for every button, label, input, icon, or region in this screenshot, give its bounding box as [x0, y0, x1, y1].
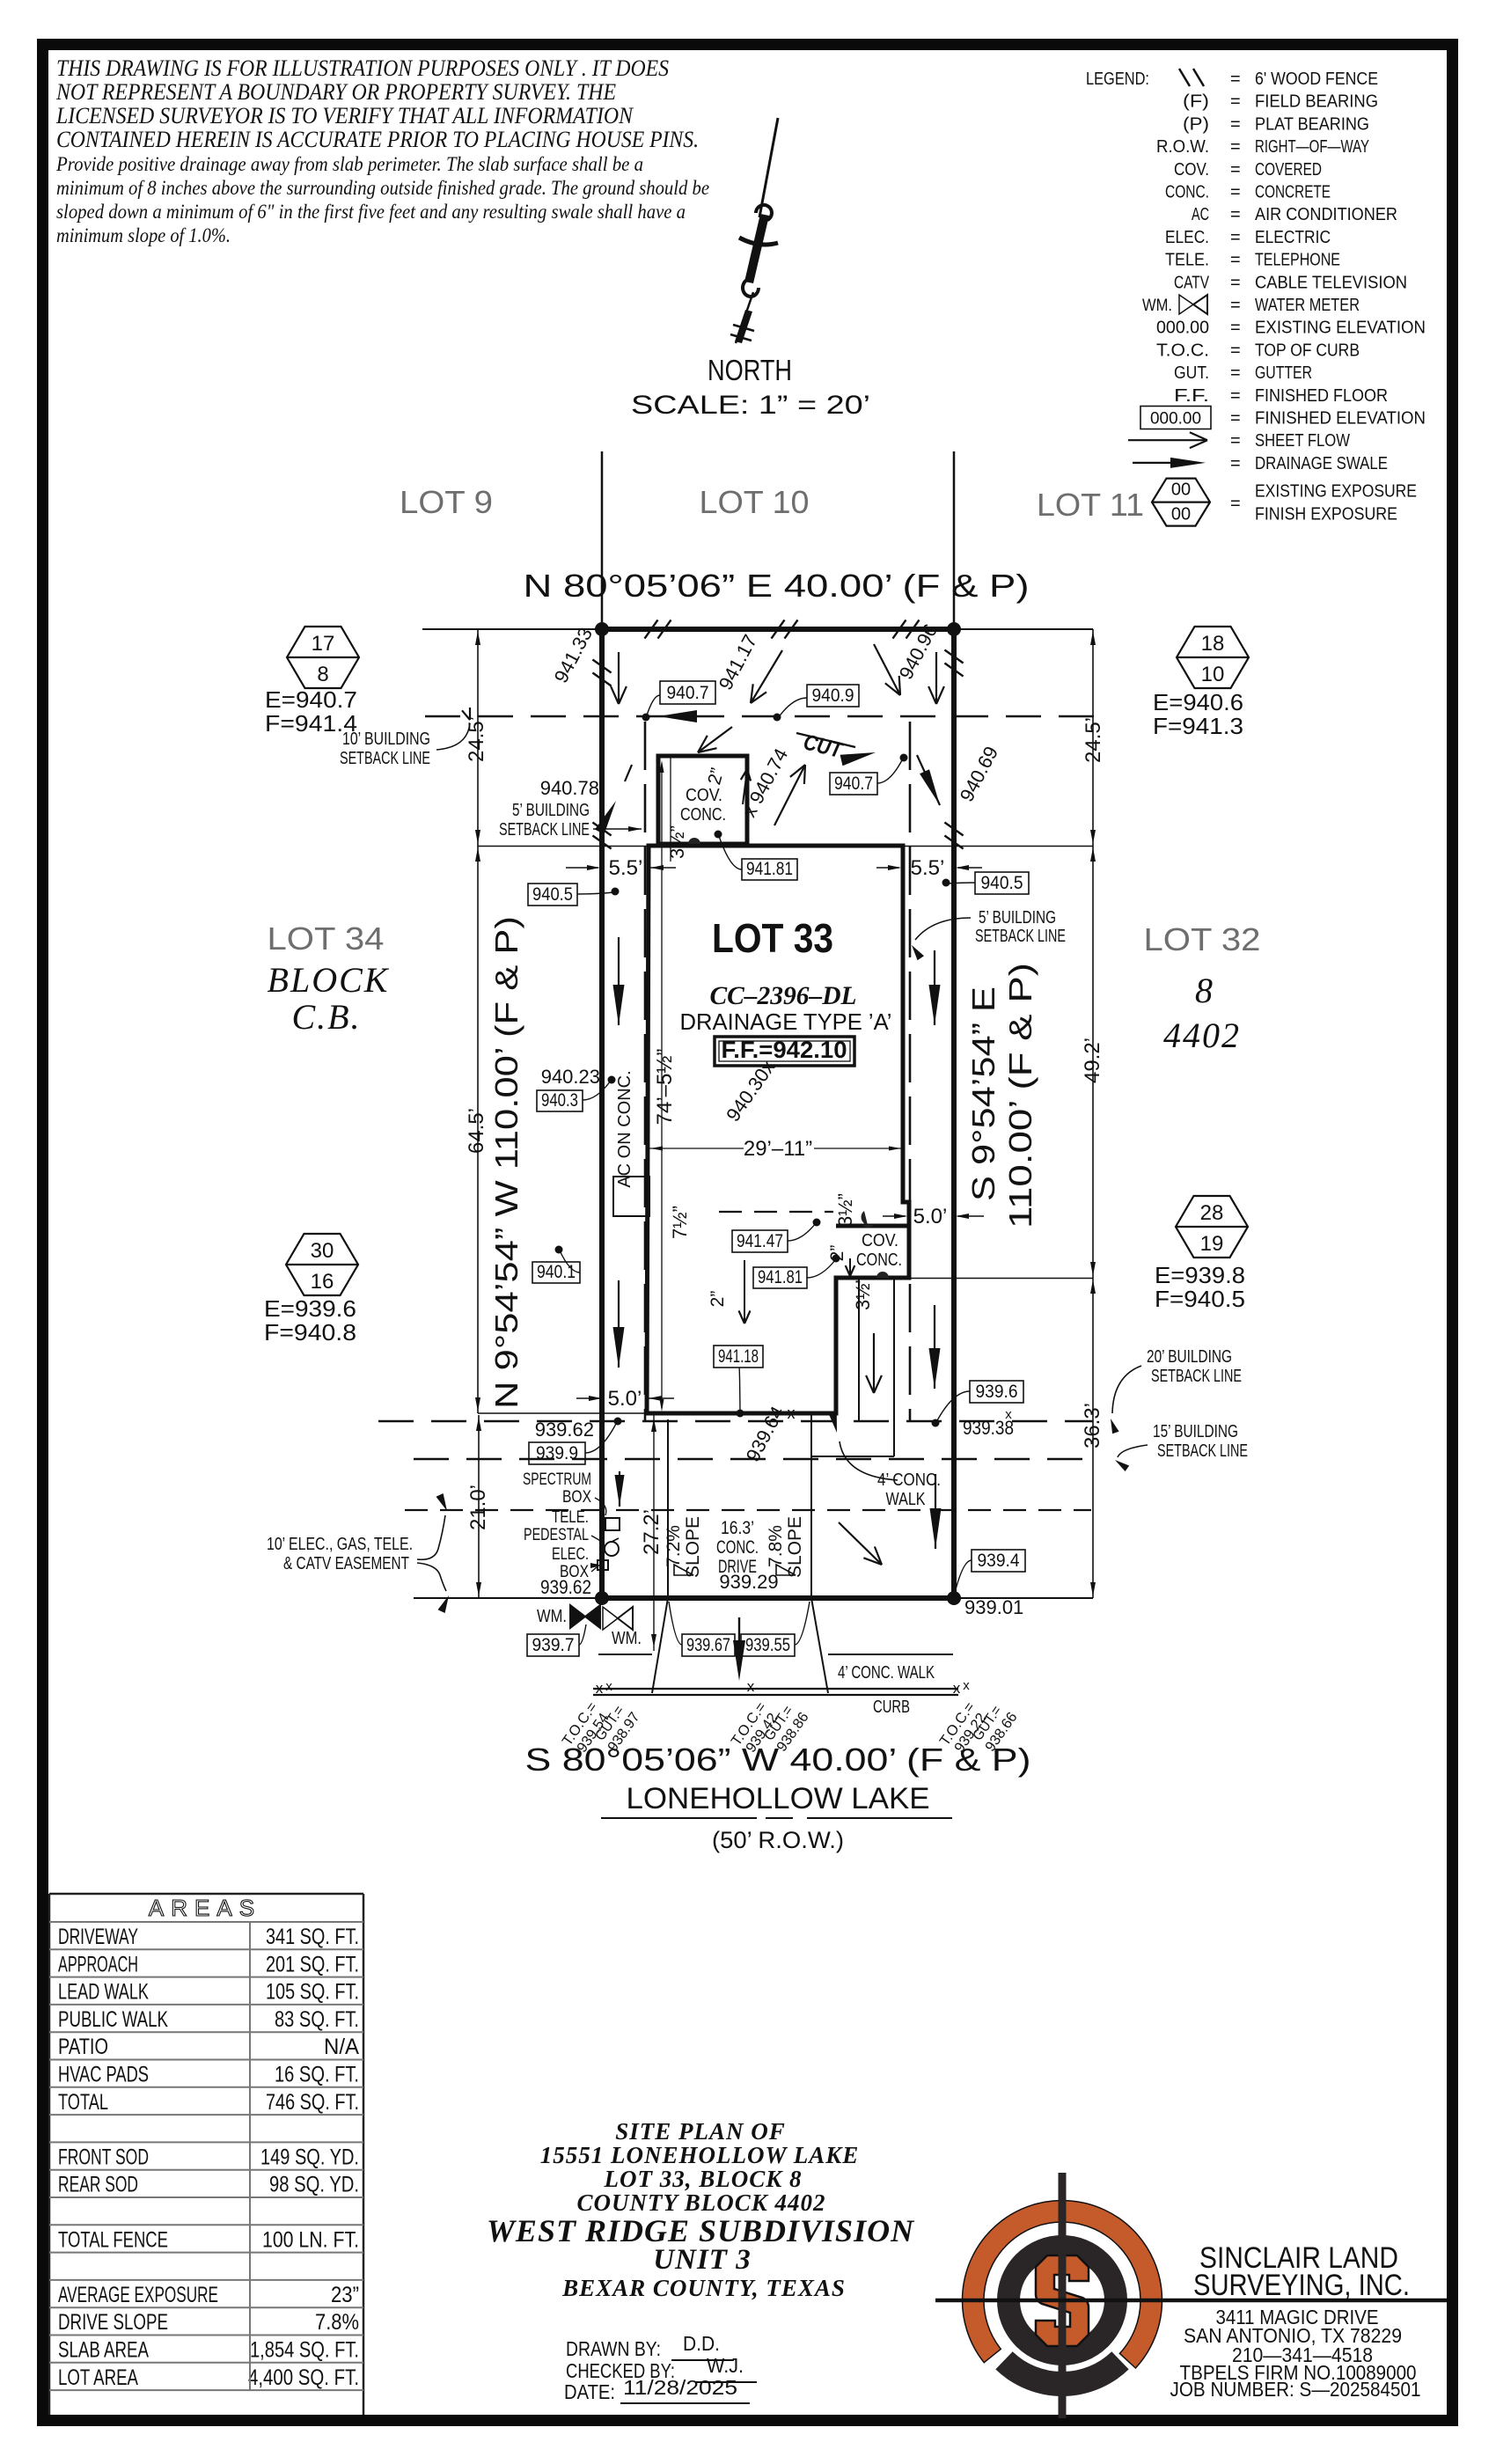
svg-text:CABLE TELEVISION: CABLE TELEVISION	[1255, 273, 1407, 292]
svg-text:=: =	[1230, 205, 1241, 224]
svg-text:x: x	[953, 1680, 961, 1697]
svg-text:TELE.: TELE.	[552, 1508, 589, 1527]
svg-text:(F): (F)	[1183, 92, 1209, 112]
svg-text:SLAB AREA: SLAB AREA	[58, 2338, 149, 2363]
svg-text:939.01: 939.01	[964, 1596, 1023, 1618]
svg-text:SURVEYING, INC.: SURVEYING, INC.	[1193, 2269, 1410, 2302]
svg-text:DATE:: DATE:	[564, 2380, 615, 2403]
svg-text:10: 10	[1201, 663, 1225, 686]
svg-text:10’ ELEC., GAS, TELE.: 10’ ELEC., GAS, TELE.	[267, 1535, 413, 1554]
svg-text:D.D.: D.D.	[683, 2332, 720, 2355]
svg-text:98 SQ. YD.: 98 SQ. YD.	[269, 2173, 359, 2197]
svg-text:74’–5½”: 74’–5½”	[653, 1049, 677, 1126]
svg-text:x: x	[788, 1404, 796, 1422]
svg-text:COV.: COV.	[862, 1231, 898, 1250]
svg-text:15’ BUILDING: 15’ BUILDING	[1153, 1422, 1238, 1441]
svg-text:DRIVEWAY: DRIVEWAY	[58, 1925, 138, 1949]
svg-text:E=940.7: E=940.7	[265, 686, 357, 713]
svg-text:N/A: N/A	[324, 2035, 359, 2059]
svg-text:15551 LONEHOLLOW LAKE: 15551 LONEHOLLOW LAKE	[540, 2142, 860, 2168]
svg-text:CC–2396–DL: CC–2396–DL	[710, 981, 857, 1010]
svg-text:LOT 11: LOT 11	[1037, 487, 1144, 523]
svg-text:36.3’: 36.3’	[1081, 1403, 1104, 1448]
svg-text:ELEC.: ELEC.	[1165, 228, 1209, 247]
svg-text:941.81: 941.81	[758, 1267, 803, 1287]
svg-text:=: =	[1230, 273, 1241, 292]
svg-text:16: 16	[311, 1270, 334, 1294]
svg-text:201 SQ. FT.: 201 SQ. FT.	[266, 1952, 359, 1976]
svg-text:COUNTY BLOCK 4402: COUNTY BLOCK 4402	[576, 2189, 825, 2216]
svg-text:FIELD BEARING: FIELD BEARING	[1255, 92, 1378, 112]
svg-text:TOP OF CURB: TOP OF CURB	[1255, 341, 1360, 360]
svg-text:ELECTRIC: ELECTRIC	[1255, 228, 1331, 247]
svg-text:E=939.6: E=939.6	[264, 1295, 356, 1322]
svg-text:24.5’: 24.5’	[1082, 717, 1105, 763]
svg-text:N 9°54’54” W 110.00’ (F &: N 9°54’54” W 110.00’ (F & P)	[488, 916, 524, 1409]
svg-text:FINISH EXPOSURE: FINISH EXPOSURE	[1255, 505, 1397, 524]
svg-text:SETBACK LINE: SETBACK LINE	[340, 749, 430, 768]
svg-text:=: =	[1230, 137, 1241, 157]
svg-text:=: =	[1230, 495, 1241, 514]
svg-text:341 SQ. FT.: 341 SQ. FT.	[266, 1925, 359, 1949]
svg-text:8: 8	[1195, 971, 1213, 1010]
svg-text:CONC.: CONC.	[856, 1250, 902, 1270]
svg-text:CURB: CURB	[873, 1698, 910, 1717]
svg-text:18: 18	[1201, 632, 1225, 656]
svg-text:16.3’: 16.3’	[721, 1518, 754, 1538]
svg-text:AC ON CONC.: AC ON CONC.	[615, 1070, 634, 1187]
svg-text:EXISTING ELEVATION: EXISTING ELEVATION	[1255, 319, 1426, 338]
svg-text:=: =	[1230, 296, 1241, 315]
svg-text:SCALE: 1” = 20’: SCALE: 1” = 20’	[631, 391, 870, 420]
svg-text:941.18: 941.18	[718, 1346, 759, 1367]
svg-text:PEDESTAL: PEDESTAL	[524, 1526, 589, 1544]
svg-text:=: =	[1230, 319, 1241, 338]
svg-text:11/28/2025: 11/28/2025	[623, 2376, 737, 2399]
svg-text:CATV: CATV	[1174, 273, 1210, 292]
svg-text:000.00: 000.00	[1156, 319, 1209, 338]
svg-text:5.5’: 5.5’	[609, 856, 643, 880]
svg-text:LEGEND:: LEGEND:	[1086, 70, 1149, 89]
svg-text:LOT 9: LOT 9	[400, 484, 493, 520]
svg-text:LONEHOLLOW LAKE: LONEHOLLOW LAKE	[627, 1782, 930, 1815]
svg-text:T.O.C.: T.O.C.	[1156, 341, 1209, 360]
svg-text:=: =	[1230, 454, 1241, 473]
svg-text:5’ BUILDING: 5’ BUILDING	[979, 908, 1056, 928]
svg-text:746 SQ. FT.: 746 SQ. FT.	[266, 2090, 359, 2115]
svg-text:WALK: WALK	[886, 1490, 927, 1509]
svg-text:x: x	[747, 1678, 755, 1695]
svg-text:ELEC.: ELEC.	[552, 1545, 589, 1564]
svg-text:110.00’ (F & P): 110.00’ (F & P)	[1002, 963, 1038, 1228]
svg-text:=: =	[1230, 228, 1241, 247]
svg-text:SPECTRUM: SPECTRUM	[523, 1470, 591, 1489]
svg-text:940.3: 940.3	[541, 1090, 578, 1111]
svg-text:940.23: 940.23	[541, 1066, 600, 1088]
svg-text:CONC.: CONC.	[1165, 183, 1209, 202]
svg-text:BOX: BOX	[560, 1563, 589, 1581]
svg-text:3½”: 3½”	[834, 1193, 856, 1227]
svg-text:F=940.5: F=940.5	[1155, 1286, 1245, 1312]
svg-text:939.9: 939.9	[536, 1443, 578, 1463]
svg-text:AIR CONDITIONER: AIR CONDITIONER	[1255, 205, 1397, 224]
svg-text:FRONT SOD: FRONT SOD	[58, 2145, 149, 2169]
svg-text:7.8%: 7.8%	[315, 2310, 359, 2335]
svg-text:7.8%: 7.8%	[766, 1525, 786, 1567]
svg-text:AREAS: AREAS	[149, 1895, 261, 1921]
svg-text:30: 30	[311, 1239, 334, 1263]
svg-text:Provide positive drainage away: Provide positive drainage away from slab…	[55, 153, 643, 175]
svg-text:HVAC PADS: HVAC PADS	[58, 2063, 149, 2087]
svg-text:939.4: 939.4	[978, 1551, 1020, 1571]
svg-text:17: 17	[312, 632, 335, 656]
svg-text:=: =	[1230, 409, 1241, 429]
svg-text:COV.: COV.	[1174, 160, 1209, 180]
svg-text:940.78: 940.78	[540, 777, 599, 799]
svg-text:939.6: 939.6	[976, 1382, 1018, 1402]
svg-text:1,854 SQ. FT.: 1,854 SQ. FT.	[250, 2338, 359, 2363]
svg-text:PATIO: PATIO	[58, 2035, 108, 2059]
svg-text:940.5: 940.5	[981, 873, 1023, 893]
svg-text:LOT 32: LOT 32	[1144, 921, 1261, 957]
svg-text:SETBACK LINE: SETBACK LINE	[1157, 1441, 1248, 1461]
svg-text:F=940.8: F=940.8	[264, 1319, 356, 1346]
svg-text:939.62: 939.62	[535, 1419, 594, 1441]
svg-text:941.47: 941.47	[737, 1231, 783, 1251]
svg-text:DRIVE: DRIVE	[718, 1557, 757, 1577]
svg-text:TELE.: TELE.	[1165, 251, 1209, 270]
svg-text:CONC.: CONC.	[680, 805, 726, 825]
svg-text:x: x	[596, 1680, 604, 1697]
svg-text:3½”: 3½”	[852, 1277, 874, 1310]
svg-text:W.J.: W.J.	[707, 2354, 744, 2377]
svg-text:49.2’: 49.2’	[1081, 1038, 1104, 1083]
svg-text:21.0’: 21.0’	[466, 1485, 490, 1530]
svg-text:sloped down a minimum of 6" in: sloped down a minimum of 6" in the first…	[56, 201, 686, 223]
svg-text:REAR SOD: REAR SOD	[58, 2173, 138, 2197]
svg-text:R.O.W.: R.O.W.	[1156, 137, 1209, 157]
svg-text:=: =	[1230, 251, 1241, 270]
svg-text:RIGHT—OF—WAY: RIGHT—OF—WAY	[1255, 137, 1369, 157]
svg-text:F=941.3: F=941.3	[1153, 713, 1243, 739]
svg-text:=: =	[1230, 431, 1241, 451]
svg-text:24.5’: 24.5’	[465, 716, 488, 762]
svg-text:NOT REPRESENT A BOUNDARY OR PR: NOT REPRESENT A BOUNDARY OR PROPERTY SUR…	[55, 78, 616, 105]
svg-text:BOX: BOX	[562, 1488, 591, 1507]
svg-text:19: 19	[1200, 1232, 1224, 1256]
svg-text:2”: 2”	[708, 1291, 728, 1308]
svg-text:4’ CONC.: 4’ CONC.	[877, 1470, 941, 1490]
svg-text:F.F.: F.F.	[1174, 386, 1209, 406]
svg-text:(P): (P)	[1183, 114, 1209, 134]
svg-text:=: =	[1230, 386, 1241, 406]
svg-text:SETBACK LINE: SETBACK LINE	[1151, 1367, 1242, 1386]
svg-text:939.55: 939.55	[745, 1635, 790, 1655]
svg-text:CONCRETE: CONCRETE	[1255, 183, 1331, 202]
svg-text:COV.: COV.	[686, 786, 722, 805]
svg-text:941.81: 941.81	[746, 859, 793, 879]
svg-text:=: =	[1230, 363, 1241, 383]
svg-text:DRAWN BY:: DRAWN BY:	[566, 2337, 661, 2360]
svg-text:BLOCK: BLOCK	[268, 960, 390, 1000]
svg-text:PLAT BEARING: PLAT BEARING	[1255, 114, 1369, 134]
svg-text:4402: 4402	[1163, 1016, 1241, 1055]
svg-text:x: x	[963, 1678, 970, 1693]
svg-text:83 SQ. FT.: 83 SQ. FT.	[275, 2007, 359, 2032]
svg-text:x: x	[1005, 1407, 1012, 1422]
svg-text:F=941.4: F=941.4	[265, 710, 357, 737]
svg-text:100 LN. FT.: 100 LN. FT.	[262, 2227, 359, 2252]
svg-text:940.7: 940.7	[667, 683, 709, 703]
svg-text:939.67: 939.67	[686, 1635, 730, 1655]
svg-text:THIS DRAWING IS FOR ILLUSTRATI: THIS DRAWING IS FOR ILLUSTRATION PURPOSE…	[56, 55, 669, 81]
svg-text:=: =	[1230, 183, 1241, 202]
svg-text:27.2’: 27.2’	[640, 1509, 664, 1555]
svg-text:F.F.=942.10: F.F.=942.10	[722, 1037, 847, 1063]
svg-text:DRAINAGE SWALE: DRAINAGE SWALE	[1255, 454, 1388, 473]
svg-text:16 SQ. FT.: 16 SQ. FT.	[275, 2063, 359, 2087]
svg-text:5.0’: 5.0’	[913, 1205, 948, 1228]
svg-text:105 SQ. FT.: 105 SQ. FT.	[266, 1980, 359, 2005]
svg-text:DRAINAGE TYPE ’A’: DRAINAGE TYPE ’A’	[680, 1008, 892, 1035]
svg-text:DRIVE SLOPE: DRIVE SLOPE	[58, 2310, 168, 2335]
svg-text:NORTH: NORTH	[708, 354, 792, 386]
svg-text:TOTAL: TOTAL	[58, 2090, 108, 2115]
svg-text:=: =	[1230, 341, 1241, 360]
svg-text:GUT.: GUT.	[1174, 363, 1209, 383]
svg-text:minimum slope of 1.0%.: minimum slope of 1.0%.	[56, 224, 231, 246]
svg-text:SHEET FLOW: SHEET FLOW	[1255, 431, 1350, 451]
svg-text:5.0’: 5.0’	[608, 1387, 642, 1411]
svg-text:(50’ R.O.W.): (50’ R.O.W.)	[712, 1827, 844, 1853]
svg-text:8: 8	[317, 663, 328, 686]
svg-text:000.00: 000.00	[1150, 410, 1201, 429]
svg-text:939.7: 939.7	[532, 1635, 575, 1655]
svg-text:64.5’: 64.5’	[465, 1108, 488, 1154]
svg-text:LOT AREA: LOT AREA	[58, 2365, 138, 2390]
svg-text:AC: AC	[1192, 205, 1209, 224]
svg-text:SETBACK LINE: SETBACK LINE	[499, 820, 590, 840]
svg-text:5.5’: 5.5’	[911, 856, 945, 880]
svg-text:LEAD WALK: LEAD WALK	[58, 1980, 149, 2005]
svg-text:LOT 34: LOT 34	[268, 920, 385, 957]
svg-text:29’–11”: 29’–11”	[744, 1137, 812, 1161]
svg-text:TELEPHONE: TELEPHONE	[1255, 251, 1340, 270]
svg-text:LOT 33: LOT 33	[712, 915, 833, 961]
svg-text:7.2%: 7.2%	[664, 1525, 684, 1567]
svg-text:CONTAINED HEREIN IS ACCURATE P: CONTAINED HEREIN IS ACCURATE PRIOR TO PL…	[56, 126, 699, 152]
svg-text:WM.: WM.	[612, 1629, 642, 1648]
svg-text:x: x	[605, 1679, 612, 1694]
svg-text:PUBLIC WALK: PUBLIC WALK	[58, 2007, 168, 2032]
svg-text:LOT 33, BLOCK 8: LOT 33, BLOCK 8	[603, 2166, 802, 2192]
svg-text:4,400 SQ. FT.: 4,400 SQ. FT.	[248, 2365, 359, 2390]
svg-text:SLOPE: SLOPE	[683, 1516, 703, 1578]
svg-text:7½”: 7½”	[669, 1206, 691, 1239]
svg-text:940.5: 940.5	[532, 884, 573, 905]
svg-text:WEST RIDGE SUBDIVISION: WEST RIDGE SUBDIVISION	[487, 2213, 915, 2248]
svg-text:TOTAL FENCE: TOTAL FENCE	[58, 2227, 168, 2252]
svg-text:WM.: WM.	[1142, 297, 1172, 315]
svg-text:149 SQ. YD.: 149 SQ. YD.	[260, 2145, 359, 2169]
svg-text:940.7: 940.7	[834, 774, 873, 794]
svg-text:940.1: 940.1	[537, 1262, 576, 1282]
svg-text:LOT 10: LOT 10	[700, 484, 810, 520]
svg-text:23”: 23”	[331, 2283, 359, 2307]
svg-text:& CATV EASEMENT: & CATV EASEMENT	[283, 1554, 409, 1573]
svg-text:=: =	[1230, 70, 1241, 89]
svg-text:00: 00	[1171, 480, 1191, 500]
svg-text:=: =	[1230, 92, 1241, 112]
svg-text:EXISTING EXPOSURE: EXISTING EXPOSURE	[1255, 482, 1417, 502]
svg-text:minimum of 8 inches above the: minimum of 8 inches above the surroundin…	[56, 177, 709, 199]
svg-text:FINISHED ELEVATION: FINISHED ELEVATION	[1255, 409, 1426, 429]
svg-text:20’ BUILDING: 20’ BUILDING	[1147, 1347, 1232, 1367]
svg-text:28: 28	[1200, 1201, 1224, 1225]
svg-text:940.9: 940.9	[812, 686, 854, 706]
svg-text:SITE PLAN OF: SITE PLAN OF	[615, 2118, 786, 2145]
svg-text:E=940.6: E=940.6	[1153, 689, 1243, 715]
svg-text:AVERAGE EXPOSURE: AVERAGE EXPOSURE	[58, 2283, 218, 2307]
svg-text:3½”: 3½”	[666, 825, 688, 859]
svg-text:S 9°54’54” E: S 9°54’54” E	[965, 986, 1001, 1201]
svg-text:COVERED: COVERED	[1255, 160, 1322, 180]
svg-text:UNIT 3: UNIT 3	[653, 2244, 751, 2276]
svg-text:APPROACH: APPROACH	[58, 1952, 138, 1976]
svg-text:E=939.8: E=939.8	[1155, 1262, 1245, 1288]
svg-text:2”: 2”	[827, 1245, 847, 1262]
svg-text:BEXAR COUNTY, TEXAS: BEXAR COUNTY, TEXAS	[561, 2275, 846, 2301]
svg-text:GUTTER: GUTTER	[1255, 363, 1312, 383]
svg-text:SETBACK LINE: SETBACK LINE	[975, 927, 1066, 946]
svg-text:5’ BUILDING: 5’ BUILDING	[512, 801, 590, 820]
svg-text:FINISHED FLOOR: FINISHED FLOOR	[1255, 386, 1388, 406]
svg-text:WM.: WM.	[537, 1607, 567, 1626]
svg-text:00: 00	[1171, 505, 1191, 524]
svg-text:JOB NUMBER: S—202584501: JOB NUMBER: S—202584501	[1170, 2378, 1421, 2401]
svg-text:LICENSED SURVEYOR IS TO VERIFY: LICENSED SURVEYOR IS TO VERIFY THAT ALL …	[55, 102, 634, 128]
svg-text:=: =	[1230, 114, 1241, 134]
svg-text:=: =	[1230, 160, 1241, 180]
svg-text:6' WOOD FENCE: 6' WOOD FENCE	[1255, 70, 1378, 89]
svg-text:4’ CONC. WALK: 4’ CONC. WALK	[838, 1663, 935, 1683]
svg-text:C.B.: C.B.	[291, 997, 361, 1037]
svg-text:SLOPE: SLOPE	[785, 1516, 805, 1578]
svg-text:WATER METER: WATER METER	[1255, 296, 1360, 315]
svg-text:CONC.: CONC.	[716, 1537, 759, 1558]
